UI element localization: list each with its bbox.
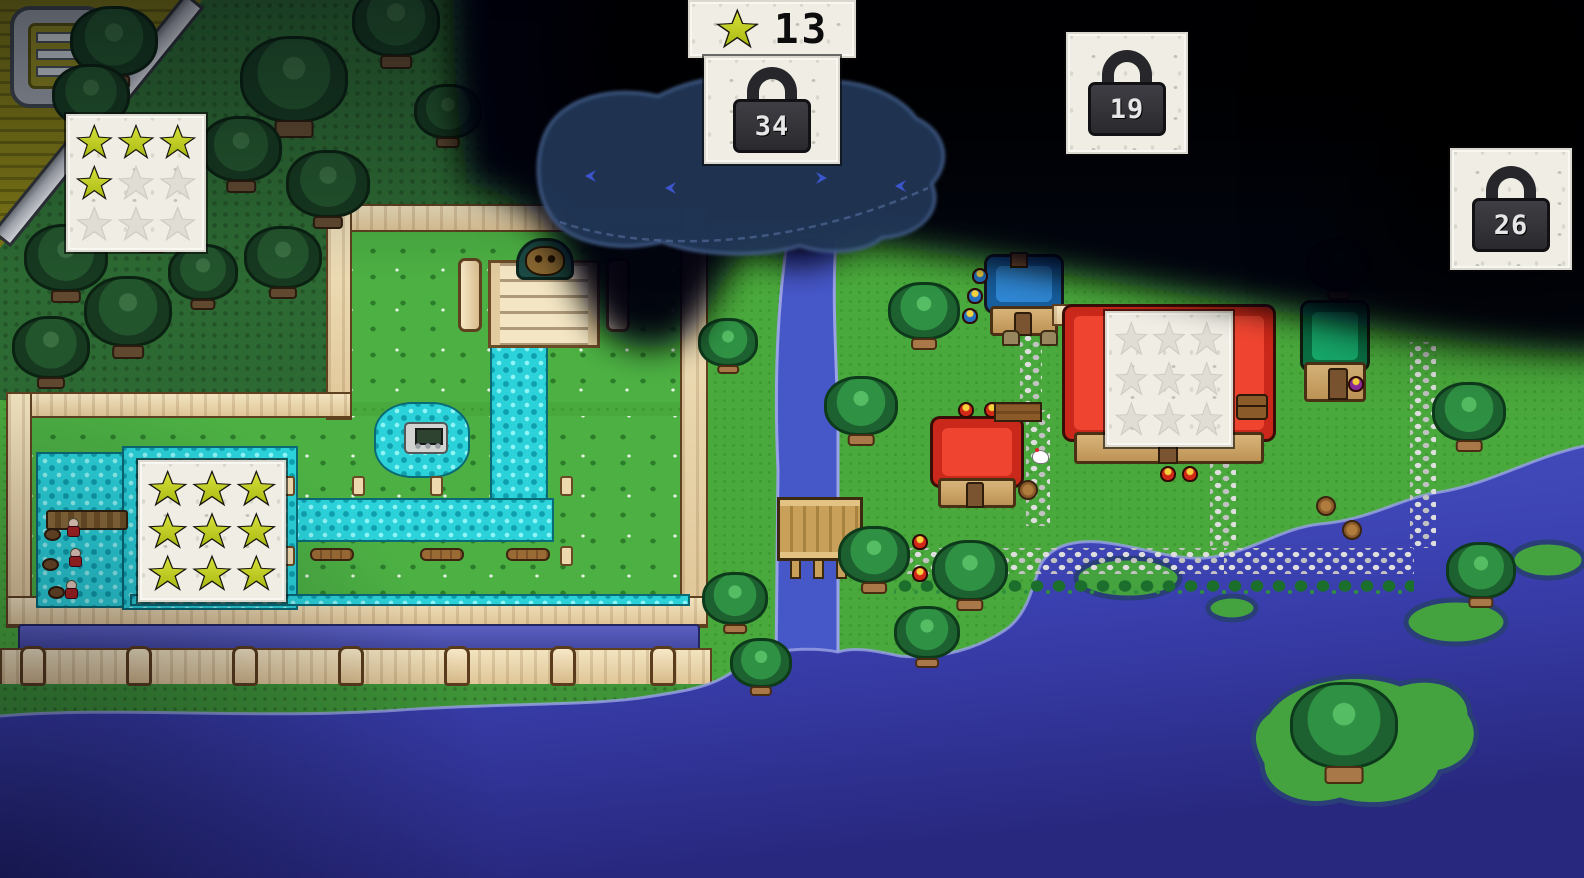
tree: [84, 276, 172, 359]
star-counter: 13: [688, 0, 856, 58]
tree: [894, 606, 960, 668]
star-filled: [147, 511, 188, 550]
star-slot-empty: [1189, 401, 1224, 438]
wooden-fence: [46, 510, 128, 530]
star-filled: [191, 511, 232, 550]
garden-wall-notch: [6, 392, 352, 418]
pot[interactable]: [912, 566, 928, 582]
tree: [824, 376, 898, 446]
barrel[interactable]: [1316, 496, 1336, 516]
pot[interactable]: [962, 308, 978, 324]
stone-path: [1224, 548, 1414, 574]
star-slot-empty: [158, 164, 197, 202]
star-slot-empty: [1152, 320, 1187, 357]
star-slot-empty: [1114, 360, 1149, 397]
tree: [244, 226, 322, 299]
padlock-icon: 26: [1472, 166, 1550, 252]
star-slot-empty: [1152, 401, 1187, 438]
star-filled: [191, 469, 232, 508]
garden-star-panel[interactable]: [138, 460, 286, 602]
temple-pillar: [606, 258, 630, 332]
fish: [816, 172, 827, 184]
pot[interactable]: [1160, 466, 1176, 482]
lock-count: 19: [1110, 94, 1145, 125]
star-icon: [715, 8, 760, 51]
log: [420, 548, 464, 561]
barrel[interactable]: [1342, 520, 1362, 540]
pot[interactable]: [958, 402, 974, 418]
bush-row: [1224, 576, 1414, 598]
star-filled: [158, 123, 197, 161]
tree: [1306, 238, 1372, 300]
pot[interactable]: [1182, 466, 1198, 482]
tree: [1446, 542, 1516, 608]
star-slot-empty: [75, 205, 114, 243]
rock: [48, 586, 65, 599]
wall-pillar: [338, 646, 364, 686]
star-filled: [236, 554, 277, 593]
pot[interactable]: [967, 288, 983, 304]
lock-marker-34[interactable]: 34: [704, 56, 840, 164]
wall-pillar: [650, 646, 676, 686]
forest-star-panel[interactable]: [66, 114, 206, 252]
log: [506, 548, 550, 561]
game-world-map: 13 34 19 26: [0, 0, 1584, 878]
tree: [838, 526, 910, 594]
tree: [168, 244, 238, 310]
garden-wall-right: [680, 204, 708, 628]
tree: [352, 0, 440, 69]
owl-emblem-icon: [516, 238, 574, 280]
pot[interactable]: [912, 534, 928, 550]
stone-post: [560, 476, 573, 496]
bridge-leg: [790, 558, 801, 579]
crate[interactable]: [994, 402, 1042, 422]
star-slot-empty: [117, 164, 156, 202]
tree: [286, 150, 370, 229]
star-count: 13: [774, 5, 829, 53]
star-filled: [117, 123, 156, 161]
star-slot-empty: [117, 205, 156, 243]
tree: [1290, 682, 1398, 784]
stone-path: [1026, 410, 1050, 526]
tree: [698, 318, 758, 374]
barrel[interactable]: [1018, 480, 1038, 500]
chicken[interactable]: [1032, 450, 1049, 464]
village-roof-star-panel[interactable]: [1105, 311, 1233, 447]
tree: [414, 84, 482, 148]
wall-pillar: [126, 646, 152, 686]
star-filled: [75, 123, 114, 161]
statue: [1040, 330, 1058, 346]
lock-count: 26: [1494, 210, 1529, 241]
beach-strip: [0, 684, 714, 718]
tree: [932, 540, 1008, 611]
star-filled: [236, 469, 277, 508]
star-slot-empty: [1114, 320, 1149, 357]
star-filled: [191, 554, 232, 593]
wall-pillar: [20, 646, 46, 686]
tree: [888, 282, 960, 350]
wall-pillar: [444, 646, 470, 686]
star-filled: [75, 164, 114, 202]
chimney: [1010, 252, 1028, 268]
river: [776, 236, 838, 668]
star-slot-empty: [1152, 360, 1187, 397]
star-slot-empty: [1189, 320, 1224, 357]
door[interactable]: [966, 482, 984, 508]
stone-path: [1020, 332, 1042, 402]
star-filled: [147, 554, 188, 593]
garden-wall-left: [6, 392, 32, 628]
rock: [44, 528, 61, 541]
treasure-chest[interactable]: [1236, 394, 1268, 420]
villager-npc[interactable]: [64, 580, 77, 599]
padlock-icon: 19: [1088, 50, 1166, 136]
tree: [1432, 382, 1506, 452]
garden-wall-notch: [326, 204, 352, 420]
stone-post: [352, 476, 365, 496]
star-slot-empty: [1189, 360, 1224, 397]
lock-marker-26[interactable]: 26: [1450, 148, 1572, 270]
padlock-icon: 34: [733, 67, 811, 153]
door[interactable]: [1328, 368, 1348, 400]
pot[interactable]: [1348, 376, 1364, 392]
tree: [702, 572, 768, 634]
canal-water: [288, 498, 554, 542]
tree: [200, 116, 282, 193]
bridge-leg: [813, 558, 824, 579]
lock-count: 34: [755, 111, 790, 142]
statue: [1002, 330, 1020, 346]
wall-pillar: [550, 646, 576, 686]
villager-npc[interactable]: [66, 518, 79, 537]
log: [310, 548, 354, 561]
wall-pillar: [232, 646, 258, 686]
tree: [730, 638, 792, 696]
stone-post: [560, 546, 573, 566]
temple-pillar: [458, 258, 482, 332]
tree: [12, 316, 90, 389]
small-red-house[interactable]: [930, 416, 1024, 510]
star-filled: [236, 511, 277, 550]
fish: [895, 180, 906, 192]
islet: [1208, 596, 1256, 620]
stone-post: [430, 476, 443, 496]
star-slot-empty: [158, 205, 197, 243]
star-slot-empty: [1114, 401, 1149, 438]
lock-marker-19[interactable]: 19: [1066, 32, 1188, 154]
pot[interactable]: [972, 268, 988, 284]
control-device[interactable]: [404, 422, 448, 454]
islet: [1512, 542, 1584, 578]
villager-npc[interactable]: [68, 548, 81, 567]
star-filled: [147, 469, 188, 508]
temple[interactable]: [446, 202, 642, 352]
rock: [42, 558, 59, 571]
